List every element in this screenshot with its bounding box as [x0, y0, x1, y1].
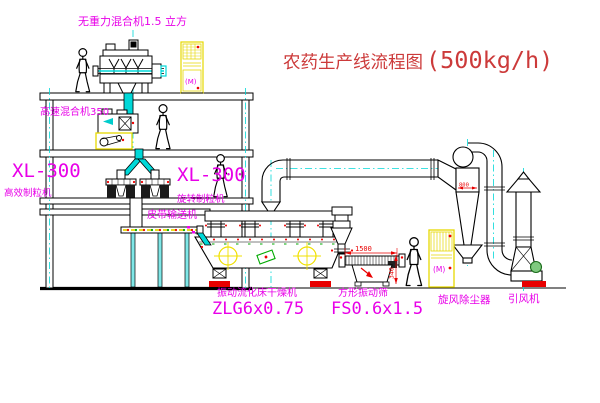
- label-belt-conveyor: 皮带输送机: [147, 208, 197, 221]
- hopper-column: [130, 198, 142, 227]
- label-high-speed-mixer: 高速混合机350: [40, 105, 109, 118]
- fan-motor: [531, 262, 542, 273]
- title-capacity: (500kg/h): [426, 46, 553, 74]
- cyclone-diameter-label: 800: [459, 183, 469, 189]
- title-text: 农药生产线流程图: [283, 53, 423, 73]
- sieve-height-dim: 340: [388, 267, 396, 279]
- label-dryer-name: 振动流化床干燥机: [217, 286, 297, 299]
- label-dryer-model: ZLG6x0.75: [212, 299, 304, 319]
- label-cyclone: 旋风除尘器: [438, 293, 491, 306]
- label-fan: 引风机: [508, 292, 540, 305]
- sieve-length-dim: 1500: [355, 245, 372, 253]
- process-flow-drawing: 800: [0, 0, 600, 403]
- cad-canvas: 800: [0, 0, 600, 403]
- label-sieve-name: 方形振动筛: [338, 286, 388, 299]
- control-cabinet-right: (M): [429, 230, 454, 287]
- control-cabinet-top: (M): [181, 42, 203, 93]
- label-granulator-right-name: 旋转制粒机: [177, 193, 225, 205]
- label-granulator-left-model: XL-300: [12, 160, 81, 182]
- label-sieve-model: FS0.6x1.5: [331, 299, 423, 319]
- cabinet2-motor-mark: (M): [433, 265, 445, 274]
- cabinet-motor-mark: (M): [185, 78, 197, 86]
- label-granulator-left-name: 高效制粒机: [4, 187, 52, 199]
- label-gravity-mixer: 无重力混合机1.5 立方: [78, 14, 187, 28]
- ground-lines: [40, 288, 566, 289]
- label-granulator-right-model: XL-300: [177, 164, 246, 186]
